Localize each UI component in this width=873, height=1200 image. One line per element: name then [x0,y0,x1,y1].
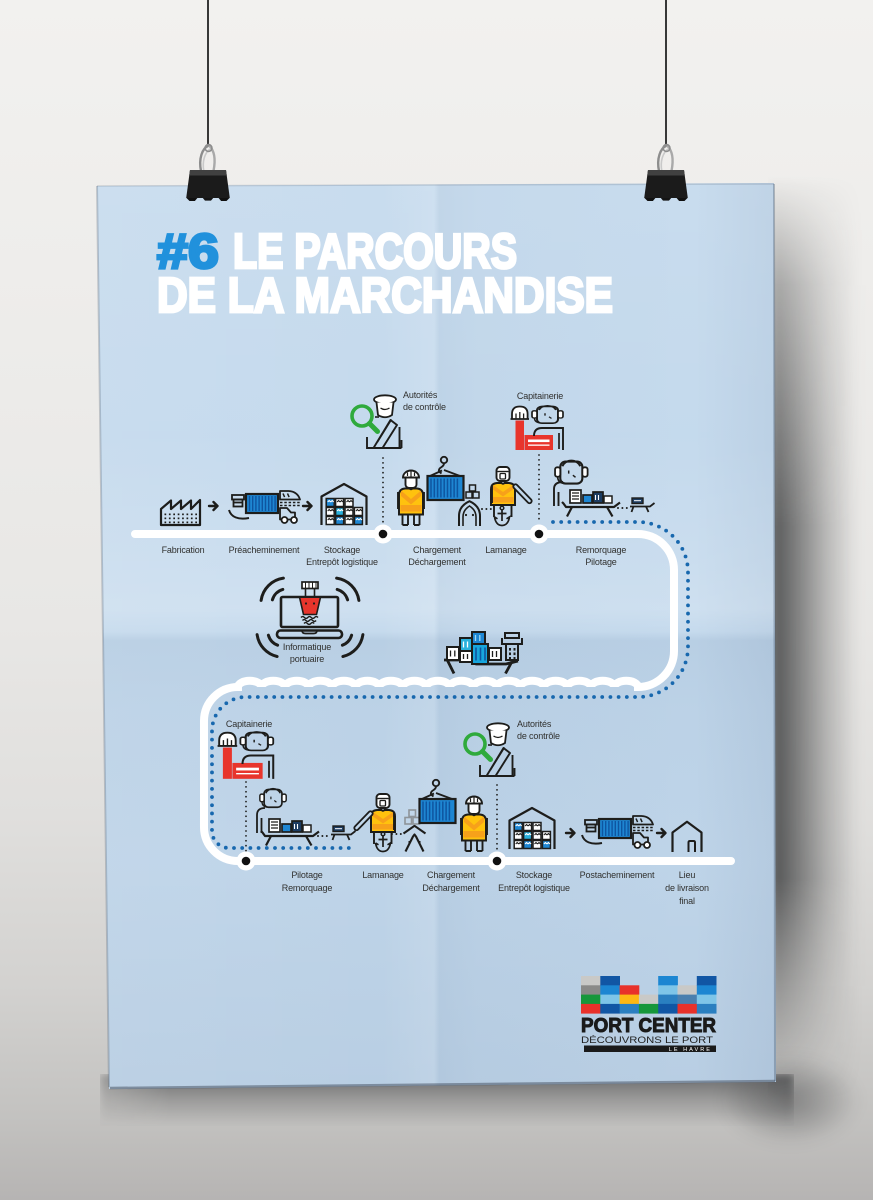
svg-text:de contrôle: de contrôle [403,402,446,412]
svg-text:Chargement: Chargement [413,545,462,555]
svg-text:final: final [679,896,695,906]
svg-text:de livraison: de livraison [665,883,709,893]
svg-text:Postacheminement: Postacheminement [580,870,655,880]
svg-text:Déchargement: Déchargement [408,557,466,567]
svg-text:Lamanage: Lamanage [485,545,526,555]
svg-text:Stockage: Stockage [324,545,360,555]
svg-text:portuaire: portuaire [290,654,324,664]
svg-text:LE HAVRE: LE HAVRE [669,1047,712,1053]
svg-text:Lieu: Lieu [679,870,696,880]
svg-text:PORT CENTER: PORT CENTER [581,1015,717,1037]
svg-text:Capitainerie: Capitainerie [517,391,563,401]
svg-text:Autorités: Autorités [403,390,438,400]
svg-text:Pilotage: Pilotage [291,870,322,880]
svg-text:Préacheminement: Préacheminement [229,545,300,555]
svg-text:Remorquage: Remorquage [576,545,627,555]
svg-text:Lamanage: Lamanage [362,870,403,880]
svg-text:Pilotage: Pilotage [585,557,616,567]
svg-text:Capitainerie: Capitainerie [226,719,272,729]
svg-text:Autorités: Autorités [517,719,552,729]
svg-text:DÉCOUVRONS LE PORT: DÉCOUVRONS LE PORT [581,1035,713,1045]
svg-text:DE LA MARCHANDISE: DE LA MARCHANDISE [157,269,613,323]
svg-text:Remorquage: Remorquage [282,883,333,893]
svg-text:Déchargement: Déchargement [422,883,480,893]
svg-text:Informatique: Informatique [283,642,331,652]
svg-text:Entrepôt logistique: Entrepôt logistique [306,557,378,567]
svg-text:Fabrication: Fabrication [162,545,205,555]
svg-text:de contrôle: de contrôle [517,731,560,741]
svg-text:Stockage: Stockage [516,870,552,880]
svg-text:Chargement: Chargement [427,870,476,880]
svg-text:Entrepôt logistique: Entrepôt logistique [498,883,570,893]
